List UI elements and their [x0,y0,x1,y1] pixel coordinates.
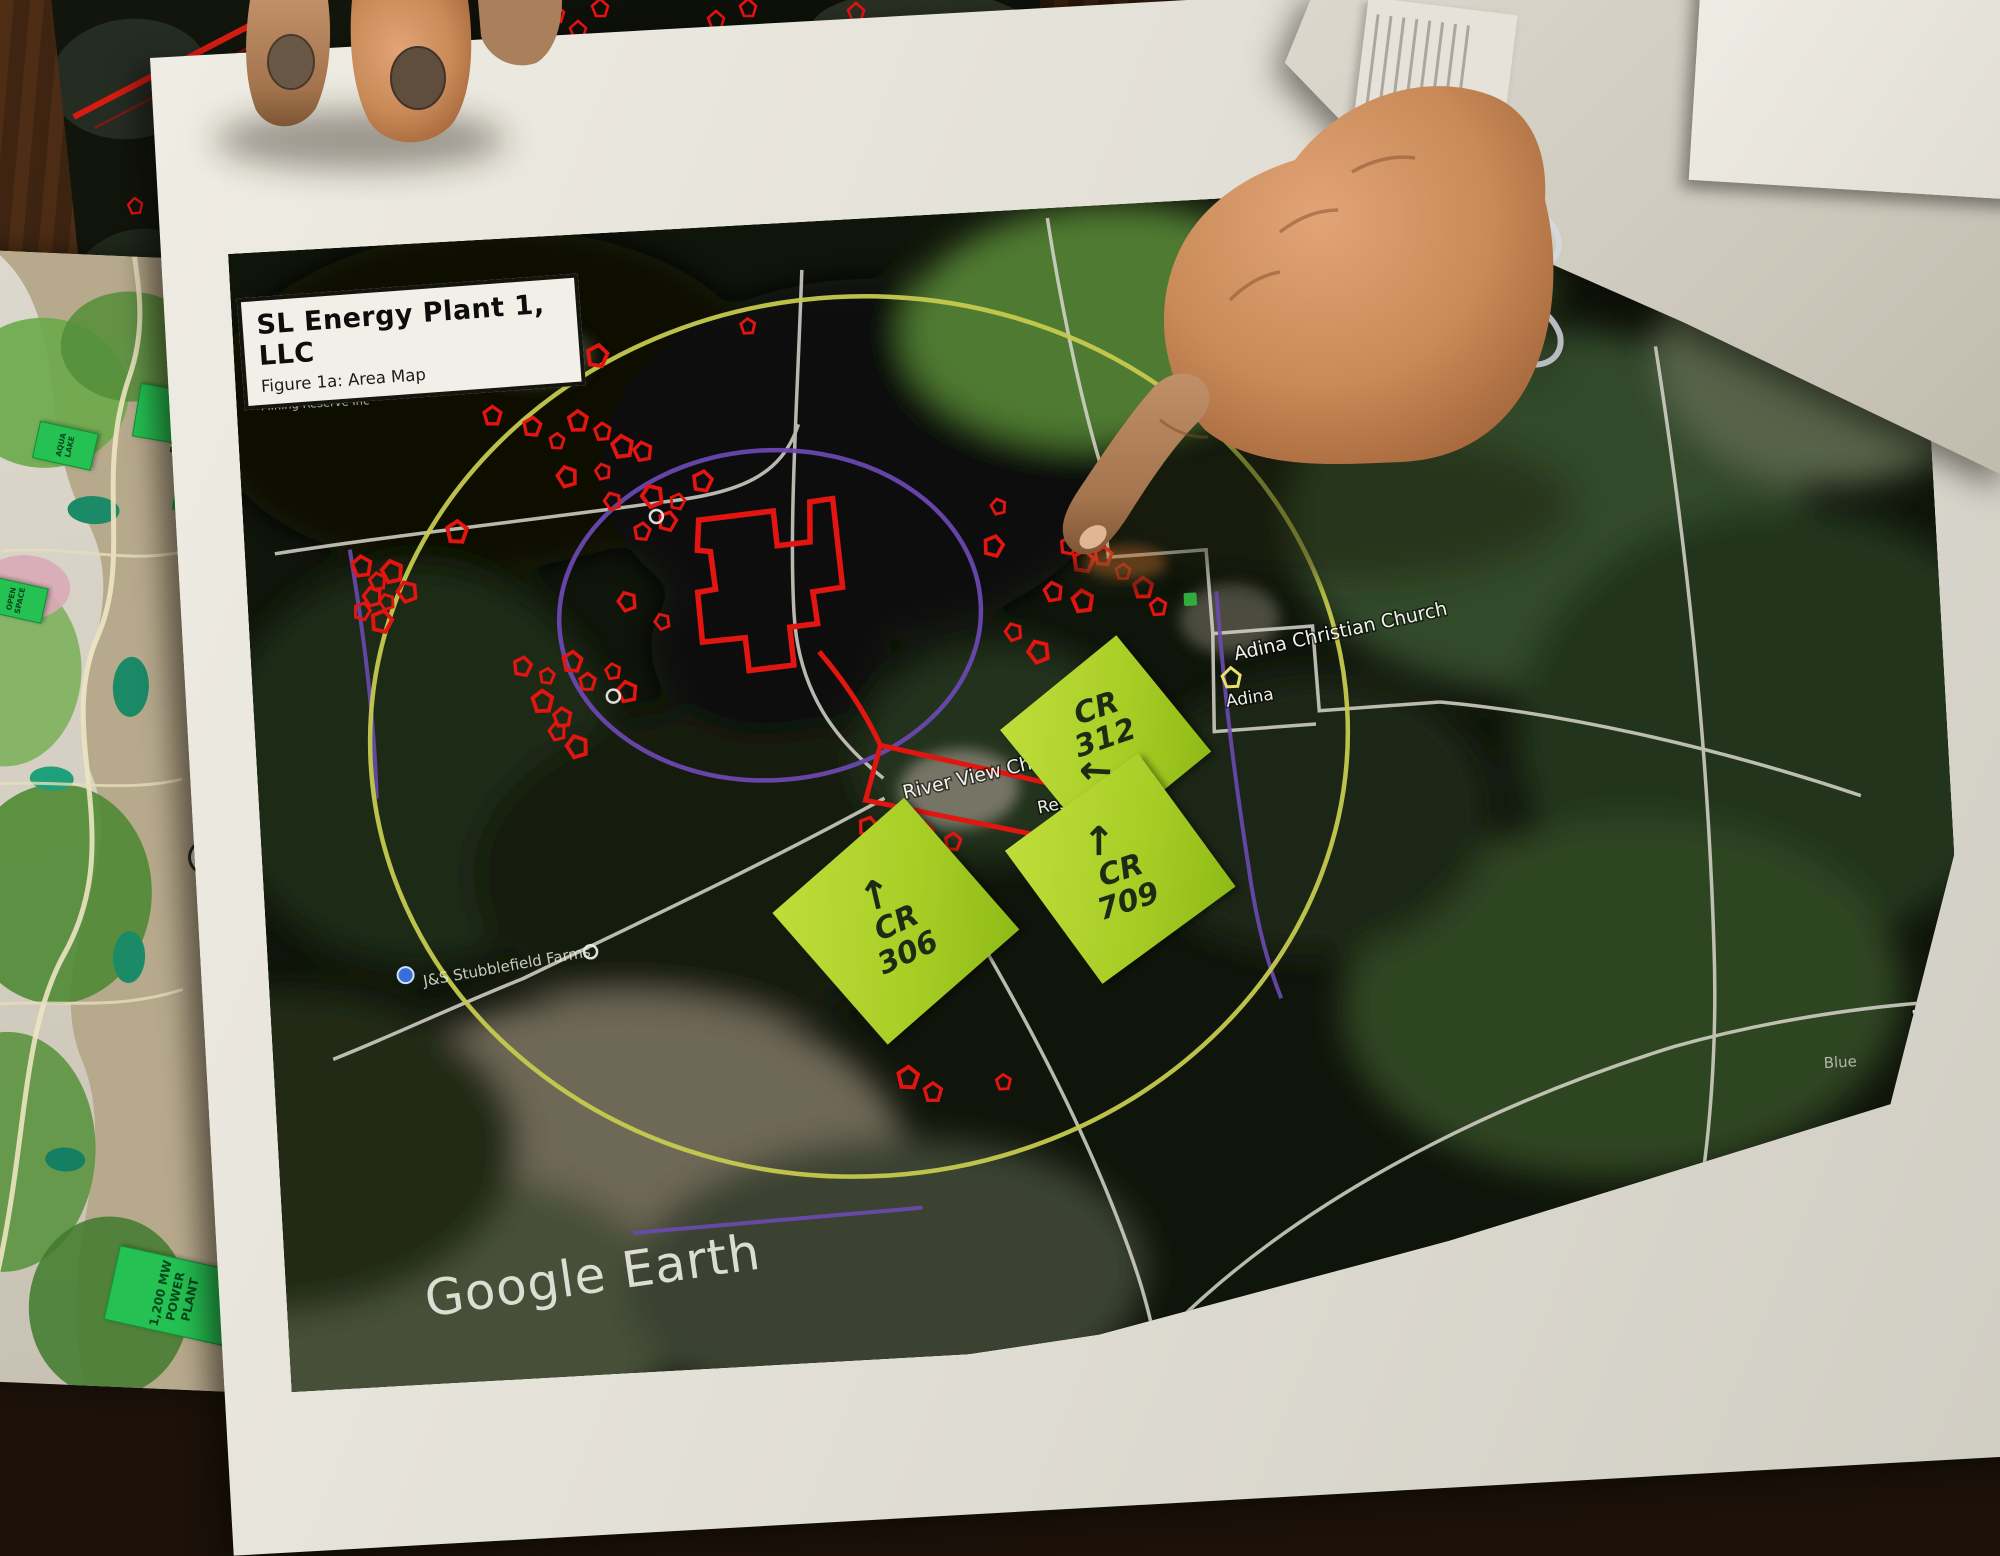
fingernail [391,47,445,109]
photo-scene: { "scene": {"caption": "Hand pointing at… [0,0,2000,1334]
fingernail [268,35,314,89]
resting-hand-shadow [215,110,505,170]
finger [478,0,562,65]
resting-hand [215,0,562,170]
hands-overlay [0,0,2000,1334]
